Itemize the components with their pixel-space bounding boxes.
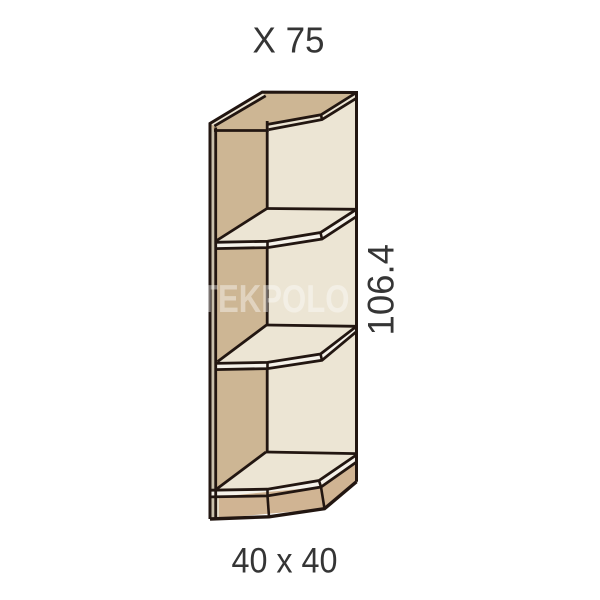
- svg-text:106.4: 106.4: [360, 244, 401, 336]
- svg-text:40 x 40: 40 x 40: [232, 541, 338, 581]
- svg-text:TEKPOLO: TEKPOLO: [199, 278, 350, 321]
- svg-text:X 75: X 75: [253, 20, 325, 61]
